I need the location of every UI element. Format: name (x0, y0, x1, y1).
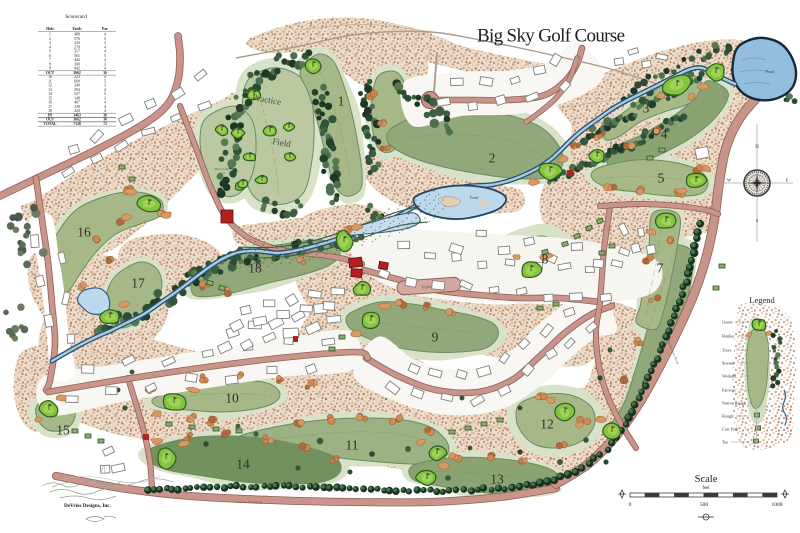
svg-text:11: 11 (346, 438, 359, 453)
svg-text:N: N (755, 145, 759, 150)
svg-text:0: 0 (629, 502, 632, 508)
svg-text:Fairway: Fairway (722, 388, 737, 393)
svg-text:Native Rough: Native Rough (722, 401, 747, 406)
svg-text:Stream: Stream (722, 361, 735, 366)
svg-text:500: 500 (700, 502, 709, 508)
svg-text:Scorecard: Scorecard (65, 14, 87, 20)
svg-text:Area: Area (219, 171, 226, 175)
svg-text:Big Sky Golf Course: Big Sky Golf Course (477, 26, 625, 47)
svg-text:18: 18 (248, 261, 262, 276)
svg-text:15: 15 (56, 423, 70, 438)
svg-text:Green: Green (722, 320, 733, 325)
svg-text:Hole: Hole (46, 27, 54, 31)
svg-text:Rough: Rough (722, 414, 734, 419)
svg-text:12: 12 (540, 417, 554, 432)
svg-text:Tee: Tee (722, 440, 728, 445)
svg-text:14: 14 (236, 457, 250, 472)
svg-text:7128: 7128 (73, 122, 81, 126)
svg-text:1000: 1000 (772, 502, 783, 508)
svg-text:16: 16 (77, 225, 91, 240)
svg-text:7: 7 (657, 261, 664, 276)
svg-text:TOTAL: TOTAL (44, 122, 57, 126)
svg-text:Cart Path: Cart Path (722, 427, 739, 432)
svg-text:Trees: Trees (722, 348, 732, 353)
svg-text:Par: Par (102, 27, 108, 31)
svg-text:6: 6 (642, 377, 649, 392)
svg-text:E: E (786, 178, 789, 183)
svg-text:9: 9 (432, 330, 439, 345)
svg-text:5: 5 (658, 171, 665, 186)
svg-text:Pond: Pond (470, 195, 478, 200)
svg-text:13: 13 (490, 472, 504, 487)
svg-text:feet: feet (702, 486, 710, 491)
svg-text:8: 8 (542, 252, 549, 267)
svg-text:10: 10 (225, 391, 239, 406)
svg-text:Wetland: Wetland (722, 374, 737, 379)
svg-text:1: 1 (338, 94, 345, 109)
svg-text:Scale: Scale (695, 474, 718, 485)
svg-text:2: 2 (489, 151, 496, 166)
svg-text:Pond: Pond (766, 69, 774, 74)
svg-text:4: 4 (661, 127, 668, 142)
svg-text:DeVries Designs, Inc.: DeVries Designs, Inc. (64, 503, 112, 509)
svg-text:Big Sky Spur Road: Big Sky Spur Road (236, 500, 263, 504)
svg-text:17: 17 (131, 276, 145, 291)
svg-text:Bunker: Bunker (722, 334, 735, 339)
svg-text:3: 3 (643, 101, 650, 116)
svg-text:Legend: Legend (749, 295, 775, 305)
svg-text:Yards: Yards (72, 27, 82, 31)
svg-text:72: 72 (103, 122, 107, 126)
